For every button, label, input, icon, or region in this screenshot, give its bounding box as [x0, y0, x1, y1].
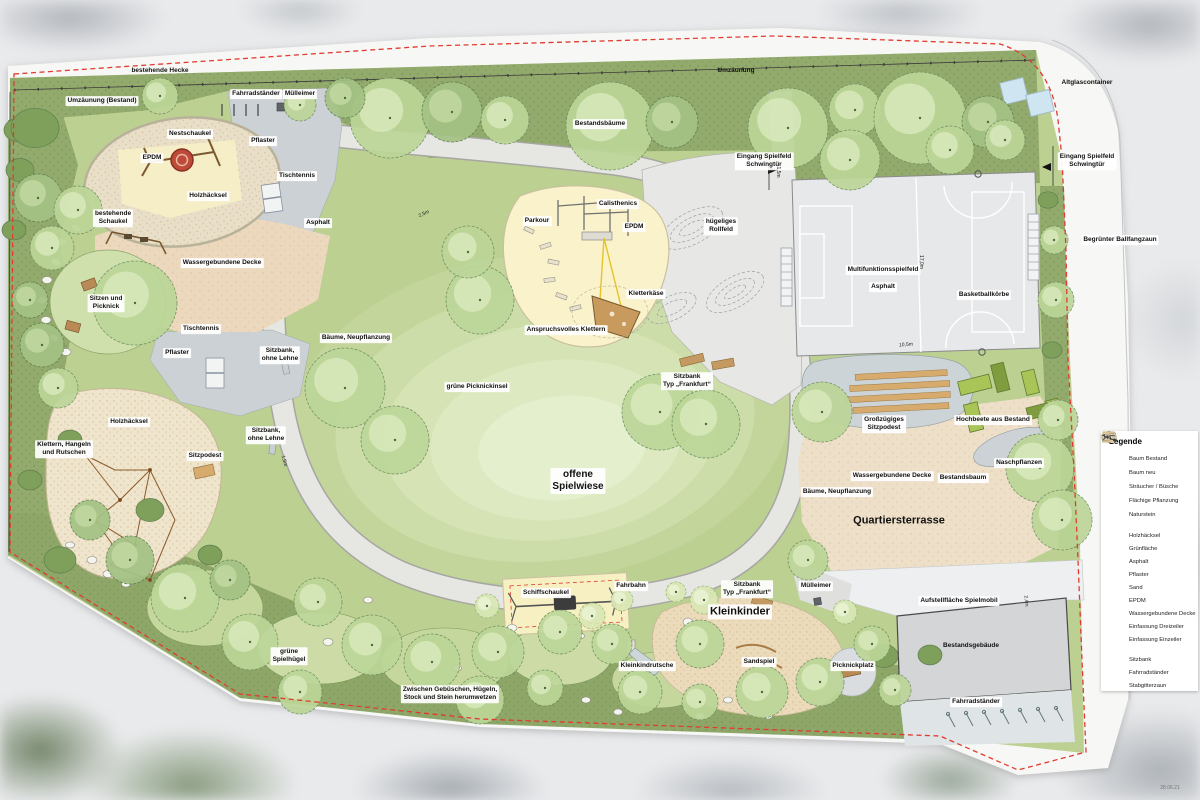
tree-icon: [666, 582, 686, 602]
bush-icon: [18, 470, 42, 490]
tree-icon: [481, 96, 529, 144]
tree-icon: [592, 624, 632, 664]
tree-icon: [566, 82, 654, 170]
legend-row-gruenflaeche: Grünfläche: [1109, 542, 1198, 555]
legend-row-stabgitterzaun: Stabgitterzaun: [1109, 679, 1198, 692]
tree-icon: [672, 390, 740, 458]
tree-icon: [788, 540, 828, 580]
legend-label: Holzhäcksel: [1129, 533, 1160, 539]
legend-label: Grünfläche: [1129, 546, 1157, 552]
legend-row-flaechige-pflanzung: Flächige Pflanzung: [1109, 494, 1198, 508]
tree-icon: [1032, 490, 1092, 550]
legend-panel: Legende Baum BestandBaum neuSträucher / …: [1101, 431, 1198, 691]
tree-icon: [611, 589, 633, 611]
legend-label: Pflaster: [1129, 572, 1149, 578]
legend-row-baum-bestand: Baum Bestand: [1109, 452, 1198, 466]
tree-icon: [475, 594, 499, 618]
legend-label: Stabgitterzaun: [1129, 683, 1166, 689]
legend-row-fahrradstaender: Fahrradständer: [1109, 666, 1198, 679]
tree-icon: [38, 368, 78, 408]
bush-icon: [11, 108, 59, 147]
tree-icon: [690, 586, 718, 614]
legend-label: Sitzbank: [1129, 657, 1151, 663]
bush-icon: [136, 499, 164, 522]
legend-row-asphalt: Asphalt: [1109, 555, 1198, 568]
tree-icon: [833, 600, 857, 624]
legend-row-pflaster: Pflaster: [1109, 568, 1198, 581]
tree-icon: [829, 84, 881, 136]
bush-icon: [2, 220, 26, 240]
tree-icon: [325, 78, 365, 118]
legend-row-holzhaecksel: Holzhäcksel: [1109, 529, 1198, 542]
legend-label: Flächige Pflanzung: [1129, 498, 1178, 504]
bush-icon: [198, 545, 222, 565]
tree-icon: [820, 130, 880, 190]
tree-icon: [472, 626, 524, 678]
bush-icon: [58, 430, 82, 450]
tree-icon: [361, 406, 429, 474]
tree-icon: [682, 684, 718, 720]
tree-icon: [736, 666, 788, 718]
tree-icon: [1040, 226, 1068, 254]
tree-icon: [20, 323, 64, 367]
tree-icon: [294, 578, 342, 626]
tree-icon: [446, 266, 514, 334]
tree-icon: [106, 536, 154, 584]
legend-group-gap: [1109, 646, 1198, 653]
legend-label: Asphalt: [1129, 559, 1148, 565]
multifunktionsspielfeld: [781, 171, 1040, 356]
legend-rows: Baum BestandBaum neuSträucher / BüscheFl…: [1109, 452, 1198, 692]
tree-icon: [93, 261, 177, 345]
legend-group-gap: [1109, 522, 1198, 529]
legend-row-straeucher: Sträucher / Büsche: [1109, 480, 1198, 494]
bush-icon: [1042, 342, 1062, 358]
legend-row-epdm: EPDM: [1109, 594, 1198, 607]
legend-label: Sand: [1129, 585, 1143, 591]
legend-row-einfassung-dreizeiler: Einfassung Dreizeiler: [1109, 620, 1198, 633]
tree-icon: [854, 626, 890, 662]
tree-icon: [527, 670, 563, 706]
legend-label: Wassergebundene Decke: [1129, 611, 1196, 617]
tree-icon: [210, 560, 250, 600]
tree-icon: [792, 382, 852, 442]
tree-icon: [404, 634, 460, 690]
tree-icon: [985, 120, 1025, 160]
legend-row-einfassung-einzeiler: Einfassung Einzeiler: [1109, 633, 1198, 646]
site-plan-drawing: bestehende HeckeUmzäunungAltglascontaine…: [0, 0, 1200, 800]
tree-icon: [796, 658, 844, 706]
plan-canvas: [0, 0, 1200, 800]
legend-label: Baum neu: [1129, 470, 1155, 476]
legend-label: EPDM: [1129, 598, 1146, 604]
bush-icon: [918, 645, 942, 665]
tree-icon: [579, 603, 605, 629]
legend-row-naturstein: Naturstein: [1109, 508, 1198, 522]
tree-icon: [748, 88, 828, 168]
legend-row-wgd: Wassergebundene Decke: [1109, 607, 1198, 620]
legend-row-sitzbank: Sitzbank: [1109, 653, 1198, 666]
tree-icon: [879, 674, 911, 706]
bush-icon: [44, 547, 76, 573]
tree-icon: [456, 676, 504, 724]
tree-icon: [1038, 282, 1074, 318]
date-stamp: 28.06.21: [1160, 785, 1179, 791]
tree-icon: [442, 226, 494, 278]
bush-icon: [1038, 192, 1058, 208]
tree-icon: [222, 614, 278, 670]
tree-icon: [676, 620, 724, 668]
tree-icon: [926, 126, 974, 174]
tree-icon: [618, 670, 662, 714]
tree-icon: [151, 564, 219, 632]
tree-icon: [278, 670, 322, 714]
legend-label: Sträucher / Büsche: [1129, 484, 1178, 490]
tree-icon: [142, 78, 178, 114]
site-plan-page: { "plan": { "labels": [ {"t":"bestehende…: [0, 0, 1200, 800]
legend-label: Einfassung Dreizeiler: [1129, 624, 1184, 630]
legend-row-sand: Sand: [1109, 581, 1198, 594]
legend-title: Legende: [1109, 437, 1198, 446]
tree-icon: [30, 226, 74, 270]
tree-icon: [70, 500, 110, 540]
tree-icon: [538, 610, 582, 654]
tree-icon: [646, 96, 698, 148]
tree-icon: [422, 82, 482, 142]
legend-label: Fahrradständer: [1129, 670, 1169, 676]
legend-row-baum-neu: Baum neu: [1109, 466, 1198, 480]
tree-icon: [342, 615, 402, 675]
tree-icon: [284, 89, 316, 121]
legend-label: Einfassung Einzeiler: [1129, 637, 1182, 643]
legend-label: Baum Bestand: [1129, 456, 1167, 462]
legend-label: Naturstein: [1129, 512, 1155, 518]
tree-icon: [54, 186, 102, 234]
tree-icon: [12, 282, 48, 318]
